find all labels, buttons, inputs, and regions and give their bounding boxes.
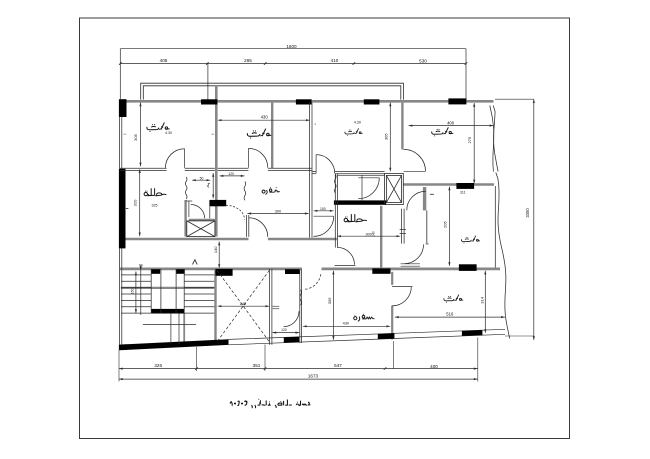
- svg-text:14: 14: [139, 264, 143, 268]
- svg-text:100: 100: [320, 207, 326, 211]
- svg-text:1600: 1600: [286, 44, 297, 49]
- svg-text:351: 351: [253, 363, 261, 368]
- svg-text:240: 240: [240, 302, 246, 306]
- svg-text:400: 400: [447, 121, 455, 126]
- svg-text:120: 120: [228, 172, 234, 176]
- svg-text:430: 430: [261, 114, 269, 119]
- svg-text:300: 300: [275, 210, 281, 214]
- svg-text:265: 265: [244, 58, 252, 63]
- svg-text:430: 430: [343, 322, 349, 326]
- svg-text:205: 205: [443, 220, 448, 227]
- svg-text:3350: 3350: [525, 208, 530, 218]
- svg-text:4.30: 4.30: [165, 131, 172, 135]
- svg-text:410: 410: [331, 58, 339, 63]
- svg-text:140: 140: [213, 246, 218, 253]
- svg-text:120: 120: [281, 328, 287, 332]
- svg-text:50: 50: [200, 177, 204, 181]
- svg-text:405: 405: [160, 58, 168, 63]
- svg-text:516: 516: [446, 312, 454, 317]
- svg-text:530: 530: [419, 58, 427, 63]
- svg-text:305: 305: [327, 297, 332, 304]
- svg-text:547: 547: [334, 363, 342, 368]
- svg-text:x: x: [315, 122, 317, 126]
- svg-text:275: 275: [467, 136, 472, 143]
- svg-text:400: 400: [430, 364, 438, 369]
- svg-text:325: 325: [152, 204, 158, 208]
- svg-text:150: 150: [130, 288, 134, 294]
- svg-text:314: 314: [479, 296, 484, 303]
- svg-text:140: 140: [372, 231, 376, 237]
- svg-text:320: 320: [132, 199, 137, 206]
- svg-text:326: 326: [154, 363, 162, 368]
- svg-text:311: 311: [460, 191, 466, 195]
- svg-text:1673: 1673: [308, 373, 319, 378]
- svg-text:4.30: 4.30: [354, 120, 361, 124]
- svg-text:305: 305: [383, 133, 388, 140]
- svg-text:305: 305: [133, 133, 138, 140]
